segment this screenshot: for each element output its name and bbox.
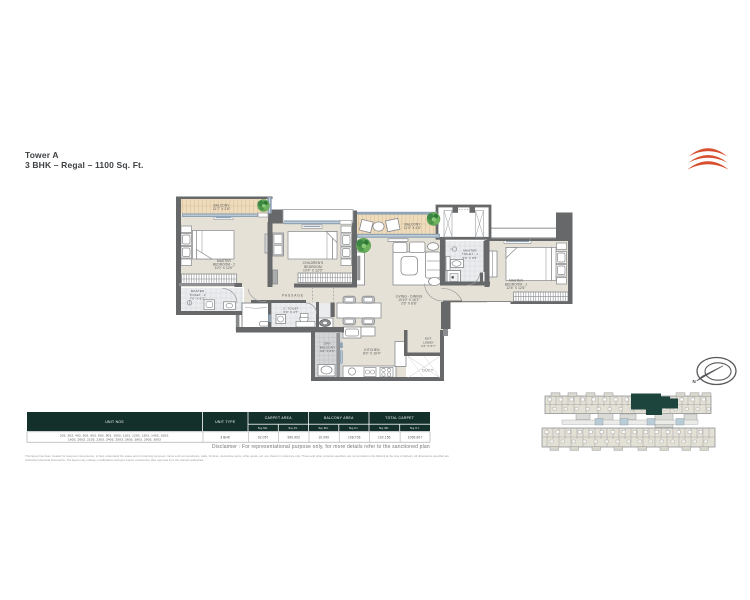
svg-text:Sq.Mt.: Sq.Mt.: [258, 426, 269, 430]
svg-text:Sq.Ft.: Sq.Ft.: [349, 426, 359, 430]
svg-text:UNIT TYPE: UNIT TYPE: [215, 420, 236, 424]
svg-text:10'4" X 12'0": 10'4" X 12'0": [303, 269, 324, 273]
svg-text:8'0" X 10'4": 8'0" X 10'4": [363, 352, 382, 356]
svg-text:5'0" X 8'5": 5'0" X 8'5": [462, 256, 477, 260]
svg-text:CARPET AREA: CARPET AREA: [265, 416, 292, 420]
svg-text:102.156: 102.156: [378, 436, 391, 440]
svg-text:10.099: 10.099: [318, 436, 329, 440]
svg-text:TOTAL CARPET: TOTAL CARPET: [385, 416, 414, 420]
svg-text:5'0" X 4'7": 5'0" X 4'7": [283, 310, 298, 314]
svg-text:DUCT: DUCT: [422, 368, 433, 372]
svg-text:7'0" X 6'3": 7'0" X 6'3": [190, 297, 205, 301]
svg-text:12'6" X 12'6": 12'6" X 12'6": [506, 286, 525, 290]
svg-text:1099.607: 1099.607: [408, 436, 423, 440]
svg-text:92.057: 92.057: [258, 436, 269, 440]
svg-text:11'7" X 2'8": 11'7" X 2'8": [213, 207, 230, 211]
svg-text:3 BHK: 3 BHK: [220, 436, 231, 440]
svg-text:3'0" X 8'6": 3'0" X 8'6": [320, 349, 335, 353]
svg-text:990.902: 990.902: [288, 436, 301, 440]
svg-text:108.706: 108.706: [348, 436, 361, 440]
svg-text:Sq.Mt.: Sq.Mt.: [318, 426, 329, 430]
svg-text:4'4" X 5'7": 4'4" X 5'7": [421, 344, 436, 348]
svg-text:N: N: [693, 379, 696, 384]
svg-text:11'0" X 12'0": 11'0" X 12'0": [214, 266, 233, 270]
svg-text:Sq.Mt.: Sq.Mt.: [379, 426, 390, 430]
svg-text:PASSAGE: PASSAGE: [282, 293, 304, 297]
svg-text:Sq.Ft.: Sq.Ft.: [288, 426, 298, 430]
svg-text:2'6" X 8'8": 2'6" X 8'8": [401, 302, 418, 306]
svg-text:11'0" X 4'6": 11'0" X 4'6": [404, 226, 421, 230]
svg-text:1603, 2003, 2103, 2303, 2403,: 1603, 2003, 2103, 2303, 2403, 2503, 2603…: [68, 437, 161, 441]
svg-text:BALCONY AREA: BALCONY AREA: [324, 416, 354, 420]
svg-text:Sq.Ft.: Sq.Ft.: [410, 426, 420, 430]
svg-text:UNIT NOS: UNIT NOS: [105, 420, 124, 424]
